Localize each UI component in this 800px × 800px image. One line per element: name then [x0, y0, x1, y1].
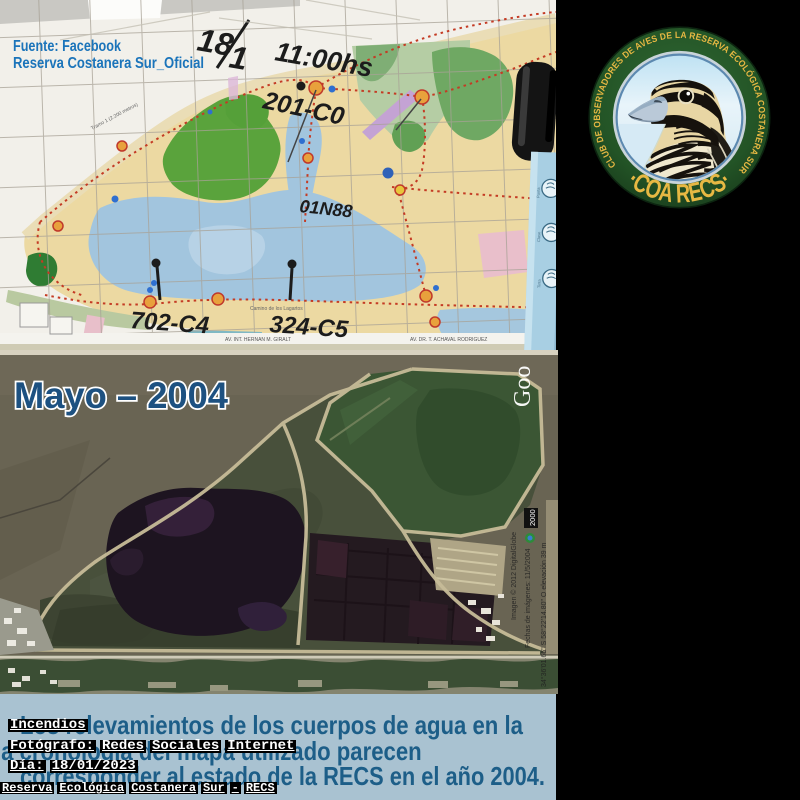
- svg-text:Imagen © 2012 DigitalGlobe: Imagen © 2012 DigitalGlobe: [510, 532, 518, 620]
- svg-text:Clase: Clase: [536, 231, 541, 242]
- svg-text:702-C4: 702-C4: [130, 307, 210, 339]
- svg-text:Fechas de imágenes: 11/5/2004: Fechas de imágenes: 11/5/2004: [525, 548, 532, 648]
- svg-text:Tinta: Tinta: [536, 278, 541, 288]
- svg-text:Goo: Goo: [510, 366, 536, 407]
- svg-text:Mayo – 2004: Mayo – 2004: [14, 375, 228, 416]
- svg-text:Punta: Punta: [536, 187, 541, 198]
- svg-text:324-C5: 324-C5: [269, 311, 350, 343]
- svg-text:2000: 2000: [528, 509, 537, 526]
- svg-text:Fuente: Facebook: Fuente: Facebook: [13, 38, 121, 55]
- svg-text:Reserva Costanera Sur_Oficial: Reserva Costanera Sur_Oficial: [13, 55, 204, 72]
- svg-text:AV. DR. T. ACHAVAL RODRIGUEZ: AV. DR. T. ACHAVAL RODRIGUEZ: [410, 337, 487, 343]
- svg-text:34°36'01.66" S 58°22'14.80": 34°36'01.66" S 58°22'14.80" O elevación …: [540, 542, 548, 687]
